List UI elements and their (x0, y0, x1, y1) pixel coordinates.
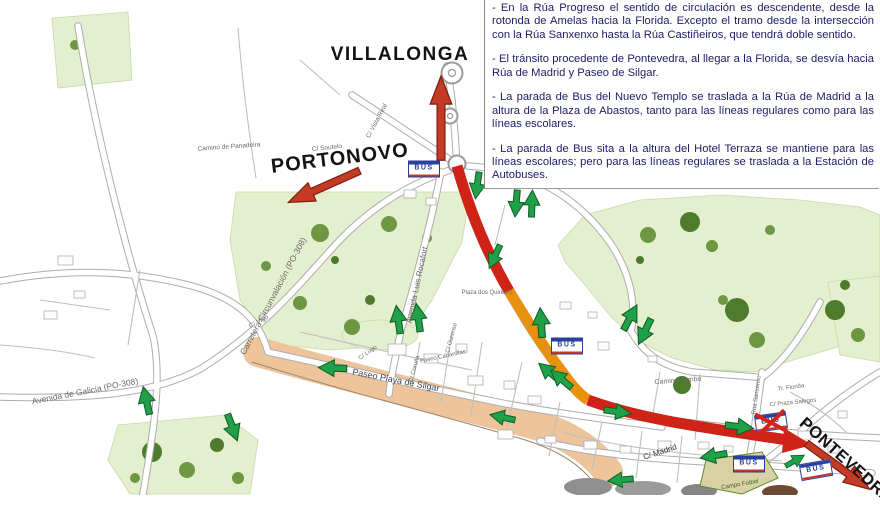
traffic-notes-panel: - En la Rúa Progreso el sentido de circu… (484, 0, 879, 189)
street-label-plaza-quintero: Plaza dos Quintero (461, 290, 512, 296)
note-parada-nuevo-templo: - La parada de Bus del Nuevo Templo se t… (492, 91, 874, 131)
note-rua-progreso: - En la Rúa Progreso el sentido de circu… (492, 2, 874, 42)
bus-stop-icon-cancelled-hotel-terraza: BUS (754, 411, 788, 432)
bus-stop-icon-plaza-abastos: BUS (551, 338, 583, 355)
bus-icon-label: BUS (734, 460, 764, 470)
bus-icon-base (409, 174, 439, 177)
note-transito-pontevedra: - El tránsito procedente de Pontevedra, … (492, 53, 874, 80)
bus-stop-icon-florida: BUS (408, 161, 440, 178)
bus-icon-base (734, 469, 764, 472)
bus-icon-label: BUS (409, 165, 439, 175)
bus-stop-icon-south: BUS (733, 456, 765, 473)
bus-icon-base (552, 351, 582, 354)
note-parada-hotel-terraza: - La parada de Bus sita a la altura del … (492, 143, 874, 183)
label-villalonga: VILLALONGA (331, 44, 470, 66)
bus-icon-label: BUS (552, 342, 582, 352)
